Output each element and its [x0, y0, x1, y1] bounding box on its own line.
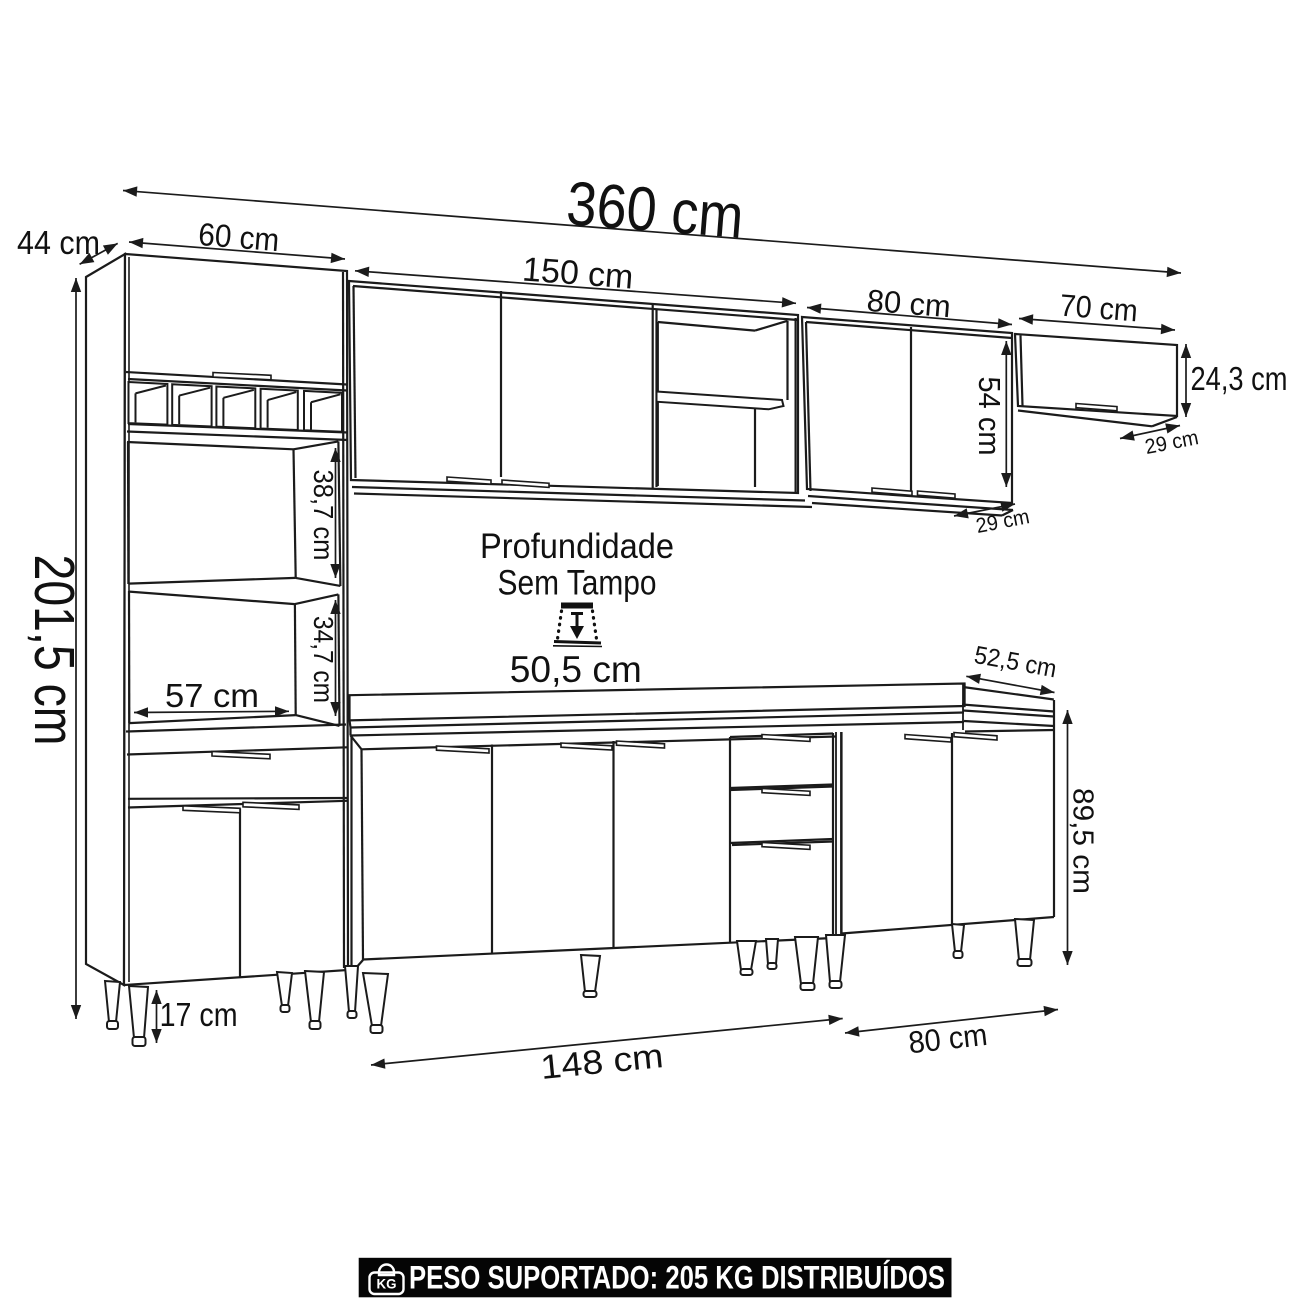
svg-text:60 cm: 60 cm: [197, 216, 281, 258]
svg-text:17 cm: 17 cm: [160, 996, 238, 1033]
svg-text:50,5 cm: 50,5 cm: [510, 649, 642, 690]
svg-text:34,7 cm: 34,7 cm: [308, 616, 339, 703]
svg-text:24,3 cm: 24,3 cm: [1191, 360, 1288, 397]
svg-text:54 cm: 54 cm: [972, 377, 1007, 456]
svg-text:57 cm: 57 cm: [165, 677, 259, 714]
svg-text:360 cm: 360 cm: [564, 169, 746, 252]
svg-text:201,5 cm: 201,5 cm: [22, 555, 86, 746]
svg-text:38,7 cm: 38,7 cm: [308, 470, 339, 561]
svg-text:89,5 cm: 89,5 cm: [1067, 788, 1099, 894]
svg-text:70 cm: 70 cm: [1059, 288, 1139, 329]
svg-text:Profundidade: Profundidade: [480, 527, 674, 566]
svg-text:KG: KG: [377, 1277, 397, 1292]
svg-text:Sem Tampo: Sem Tampo: [498, 564, 657, 603]
svg-text:PESO SUPORTADO: 205 KG DISTRIB: PESO SUPORTADO: 205 KG DISTRIBUÍDOS: [409, 1260, 945, 1296]
svg-text:80 cm: 80 cm: [866, 283, 952, 324]
